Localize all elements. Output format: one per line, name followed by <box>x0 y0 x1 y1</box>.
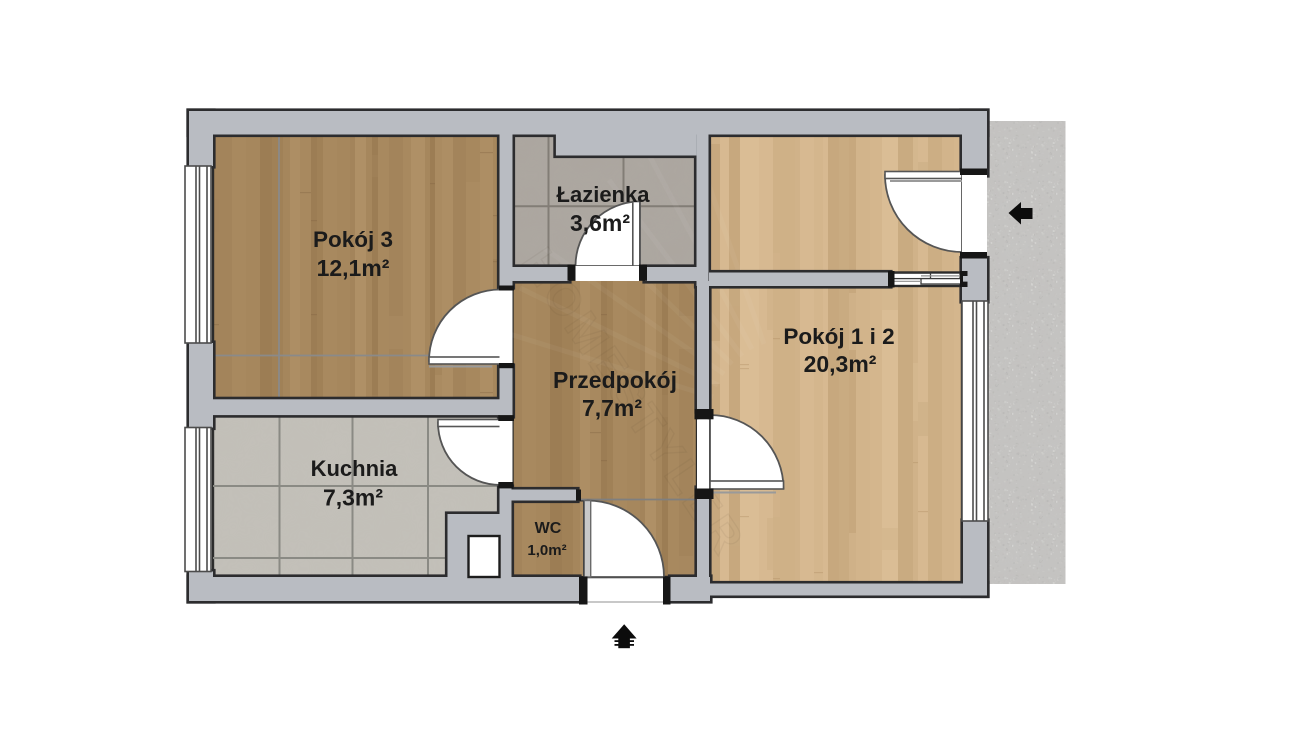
svg-text:Pokój 3: Pokój 3 <box>313 227 393 252</box>
svg-text:20,3m²: 20,3m² <box>804 351 877 377</box>
svg-text:Przedpokój: Przedpokój <box>553 367 677 393</box>
svg-text:WC: WC <box>535 520 562 537</box>
svg-text:12,1m²: 12,1m² <box>317 255 390 281</box>
svg-text:Pokój 1 i 2: Pokój 1 i 2 <box>783 324 894 349</box>
svg-text:7,3m²: 7,3m² <box>323 485 383 511</box>
svg-text:Łazienka: Łazienka <box>557 182 651 207</box>
svg-text:3,6m²: 3,6m² <box>570 210 630 236</box>
svg-text:7,7m²: 7,7m² <box>582 395 642 421</box>
svg-text:1,0m²: 1,0m² <box>527 542 566 559</box>
svg-text:Kuchnia: Kuchnia <box>311 456 399 481</box>
